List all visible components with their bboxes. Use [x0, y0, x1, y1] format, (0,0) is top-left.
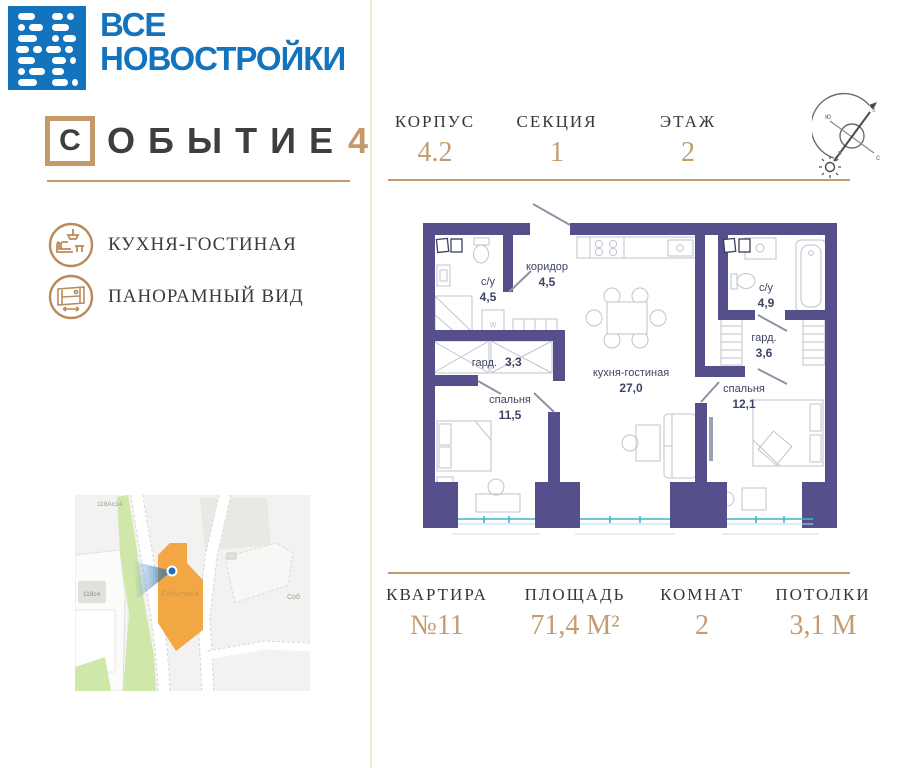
room-label: гард.	[472, 357, 497, 369]
room-label: с/у	[759, 282, 774, 294]
feature-label: КУХНЯ-ГОСТИНАЯ	[108, 234, 297, 256]
stat-ploshchad: ПЛОЩАДЬ 71,4 М²	[505, 585, 645, 642]
compass-south-label: ю	[825, 112, 831, 121]
stat-potolki: ПОТОЛКИ 3,1 М	[753, 585, 893, 642]
compass-north-label: с	[876, 153, 880, 162]
stat-label: КОРПУС	[365, 112, 505, 132]
sofa-lamp-icon	[48, 222, 94, 268]
stat-komnat: КОМНАТ 2	[632, 585, 772, 642]
brand-line1: ВСЕ	[100, 8, 345, 42]
location-map[interactable]: Событие-4 118Ас14 118с4 Соб	[75, 495, 310, 691]
footer-topline	[388, 572, 850, 574]
stat-label: КВАРТИРА	[367, 585, 507, 605]
room-label: спальня	[489, 394, 531, 406]
room-area: 4,9	[758, 296, 775, 310]
panoramic-window-icon	[48, 274, 94, 320]
stat-value: 1	[487, 137, 627, 169]
feature-kitchen-living: КУХНЯ-ГОСТИНАЯ	[48, 222, 297, 268]
compass-east-label: в	[838, 150, 842, 157]
stat-value: 2	[618, 137, 758, 169]
room-label: коридор	[526, 261, 568, 273]
room-area: 4,5	[480, 290, 497, 304]
room-area: 11,5	[499, 408, 522, 422]
project-logo: С ОБЫТИЕ 4	[45, 116, 368, 166]
stat-sekcia: СЕКЦИЯ 1	[487, 112, 627, 169]
page: ВСЕ НОВОСТРОЙКИ С ОБЫТИЕ 4 КУХНЯ-ГОСТИНА…	[0, 0, 922, 768]
floor-plan: с/у 4,5 коридор 4,5 кухня-гостиная 27,0 …	[415, 195, 865, 540]
windows	[452, 516, 818, 534]
room-area: 3,6	[756, 346, 773, 360]
map-building-label: Событие-4	[161, 589, 199, 598]
stat-label: ЭТАЖ	[618, 112, 758, 132]
room-label: спальня	[723, 383, 765, 395]
stat-value: 2	[632, 610, 772, 642]
compass-sun-icon	[819, 156, 841, 178]
project-underline	[47, 180, 350, 182]
brand-text: ВСЕ НОВОСТРОЙКИ	[100, 8, 345, 76]
room-label: с/у	[481, 276, 496, 288]
stat-value: №11	[367, 610, 507, 642]
stat-etazh: ЭТАЖ 2	[618, 112, 758, 169]
room-area: 12,1	[732, 397, 756, 411]
map-label: Соб	[287, 593, 300, 601]
stat-label: ПЛОЩАДЬ	[505, 585, 645, 605]
room-label: гард.	[751, 332, 776, 344]
header-underline	[388, 179, 850, 181]
stat-value: 71,4 М²	[505, 610, 645, 642]
stat-value: 3,1 М	[753, 610, 893, 642]
stat-label: ПОТОЛКИ	[753, 585, 893, 605]
stat-korpus: КОРПУС 4.2	[365, 112, 505, 169]
washer-label: w	[489, 319, 497, 329]
brand-line2: НОВОСТРОЙКИ	[100, 42, 345, 76]
map-label: 118Ас14	[97, 501, 123, 508]
feature-label: ПАНОРАМНЫЙ ВИД	[108, 286, 304, 308]
stat-kvartira: КВАРТИРА №11	[367, 585, 507, 642]
feature-panoramic-view: ПАНОРАМНЫЙ ВИД	[48, 274, 304, 320]
map-label: 118с4	[83, 591, 101, 598]
room-area: 3,3	[505, 355, 522, 369]
compass-west-label: з	[872, 107, 875, 114]
project-first-letter: С	[45, 116, 95, 166]
stat-label: КОМНАТ	[632, 585, 772, 605]
project-name-rest: ОБЫТИЕ	[107, 120, 346, 162]
room-area: 4,5	[539, 275, 556, 289]
brand-logo[interactable]: ВСЕ НОВОСТРОЙКИ	[8, 6, 345, 90]
stat-label: СЕКЦИЯ	[487, 112, 627, 132]
brand-logo-icon	[8, 6, 86, 90]
room-area: 27,0	[619, 381, 643, 395]
compass-icon: ю с з в	[812, 92, 912, 192]
stat-value: 4.2	[365, 137, 505, 169]
room-label: кухня-гостиная	[593, 367, 669, 379]
